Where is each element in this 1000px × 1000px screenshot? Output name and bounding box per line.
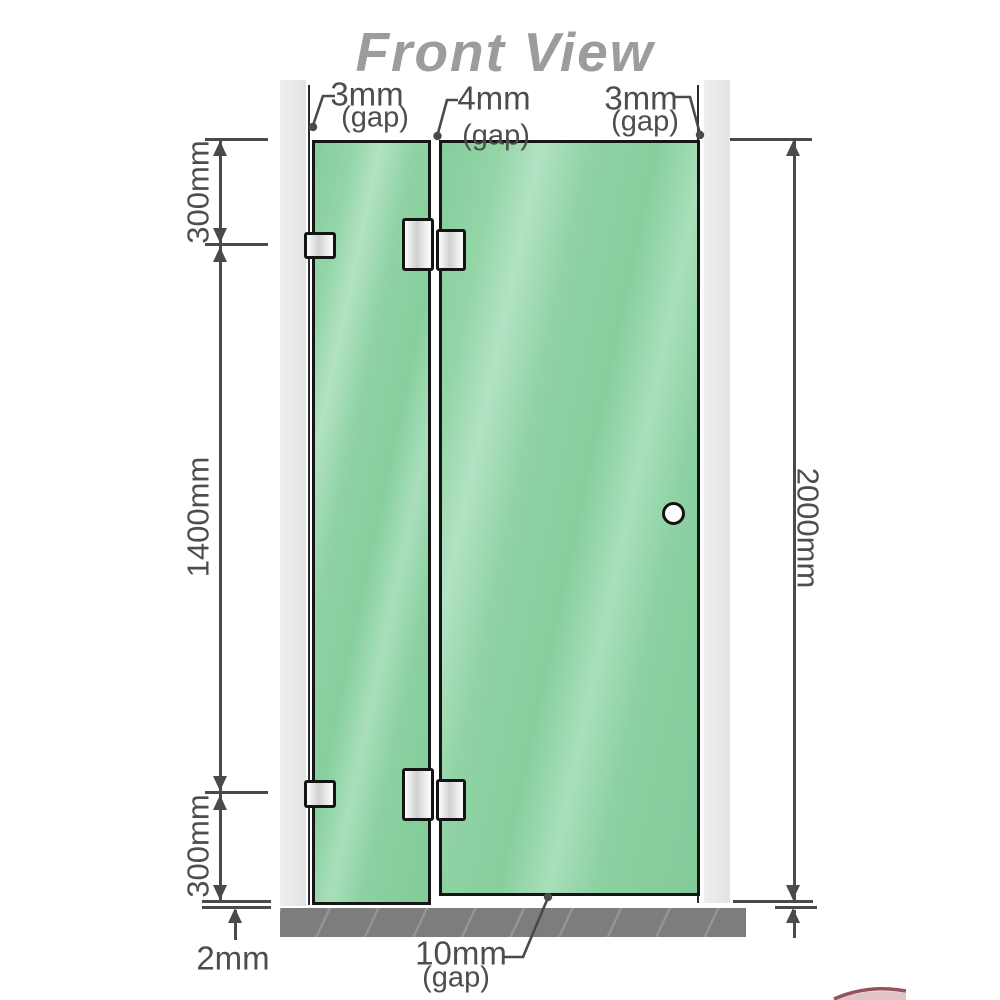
left-dim-tick-bottom: [202, 900, 271, 903]
floor-base: [280, 908, 746, 937]
bottom-hinge-door-plate: [436, 779, 466, 821]
gap-label-door-bottom-note: (gap): [422, 964, 490, 993]
gap-label-middle-value: 4mm: [457, 82, 530, 115]
arrow-down-icon: [213, 776, 227, 791]
left-wall: [280, 80, 306, 906]
gap-label-middle-note: (gap): [462, 122, 530, 151]
arrow-up-icon: [228, 908, 242, 923]
right-wall: [704, 80, 730, 903]
wall-bracket-bottom: [304, 780, 336, 808]
wall-bracket-top: [304, 232, 336, 259]
arrow-up-icon: [786, 141, 800, 156]
dim-label-total-height: 2000mm: [793, 468, 824, 589]
watermark-fragment: [834, 989, 906, 1000]
dim-label-floor-gap: 2mm: [196, 942, 269, 975]
right-dim-tick-bottom: [733, 900, 813, 903]
gap-label-right-note: (gap): [611, 108, 679, 137]
top-hinge-fixed-plate: [402, 218, 434, 271]
diagram-title: Front View: [5, 20, 1000, 84]
arrow-up-icon: [213, 247, 227, 262]
dim-label-middle-segment: 1400mm: [183, 457, 214, 578]
door-glass-panel: [439, 140, 700, 896]
arrow-down-icon: [786, 885, 800, 900]
door-knob: [662, 502, 685, 525]
top-hinge-door-plate: [436, 229, 466, 271]
dim-label-top-segment: 300mm: [183, 140, 214, 243]
dim-label-bottom-segment: 300mm: [183, 794, 214, 897]
front-view-diagram: Front View 300mm 1400mm 300mm 2mm 2000mm…: [0, 0, 1000, 1000]
gap-label-left-note: (gap): [341, 104, 409, 133]
left-dim-tick-1700: [205, 791, 268, 794]
bottom-hinge-fixed-plate: [402, 768, 434, 821]
arrow-up-icon: [786, 908, 800, 923]
